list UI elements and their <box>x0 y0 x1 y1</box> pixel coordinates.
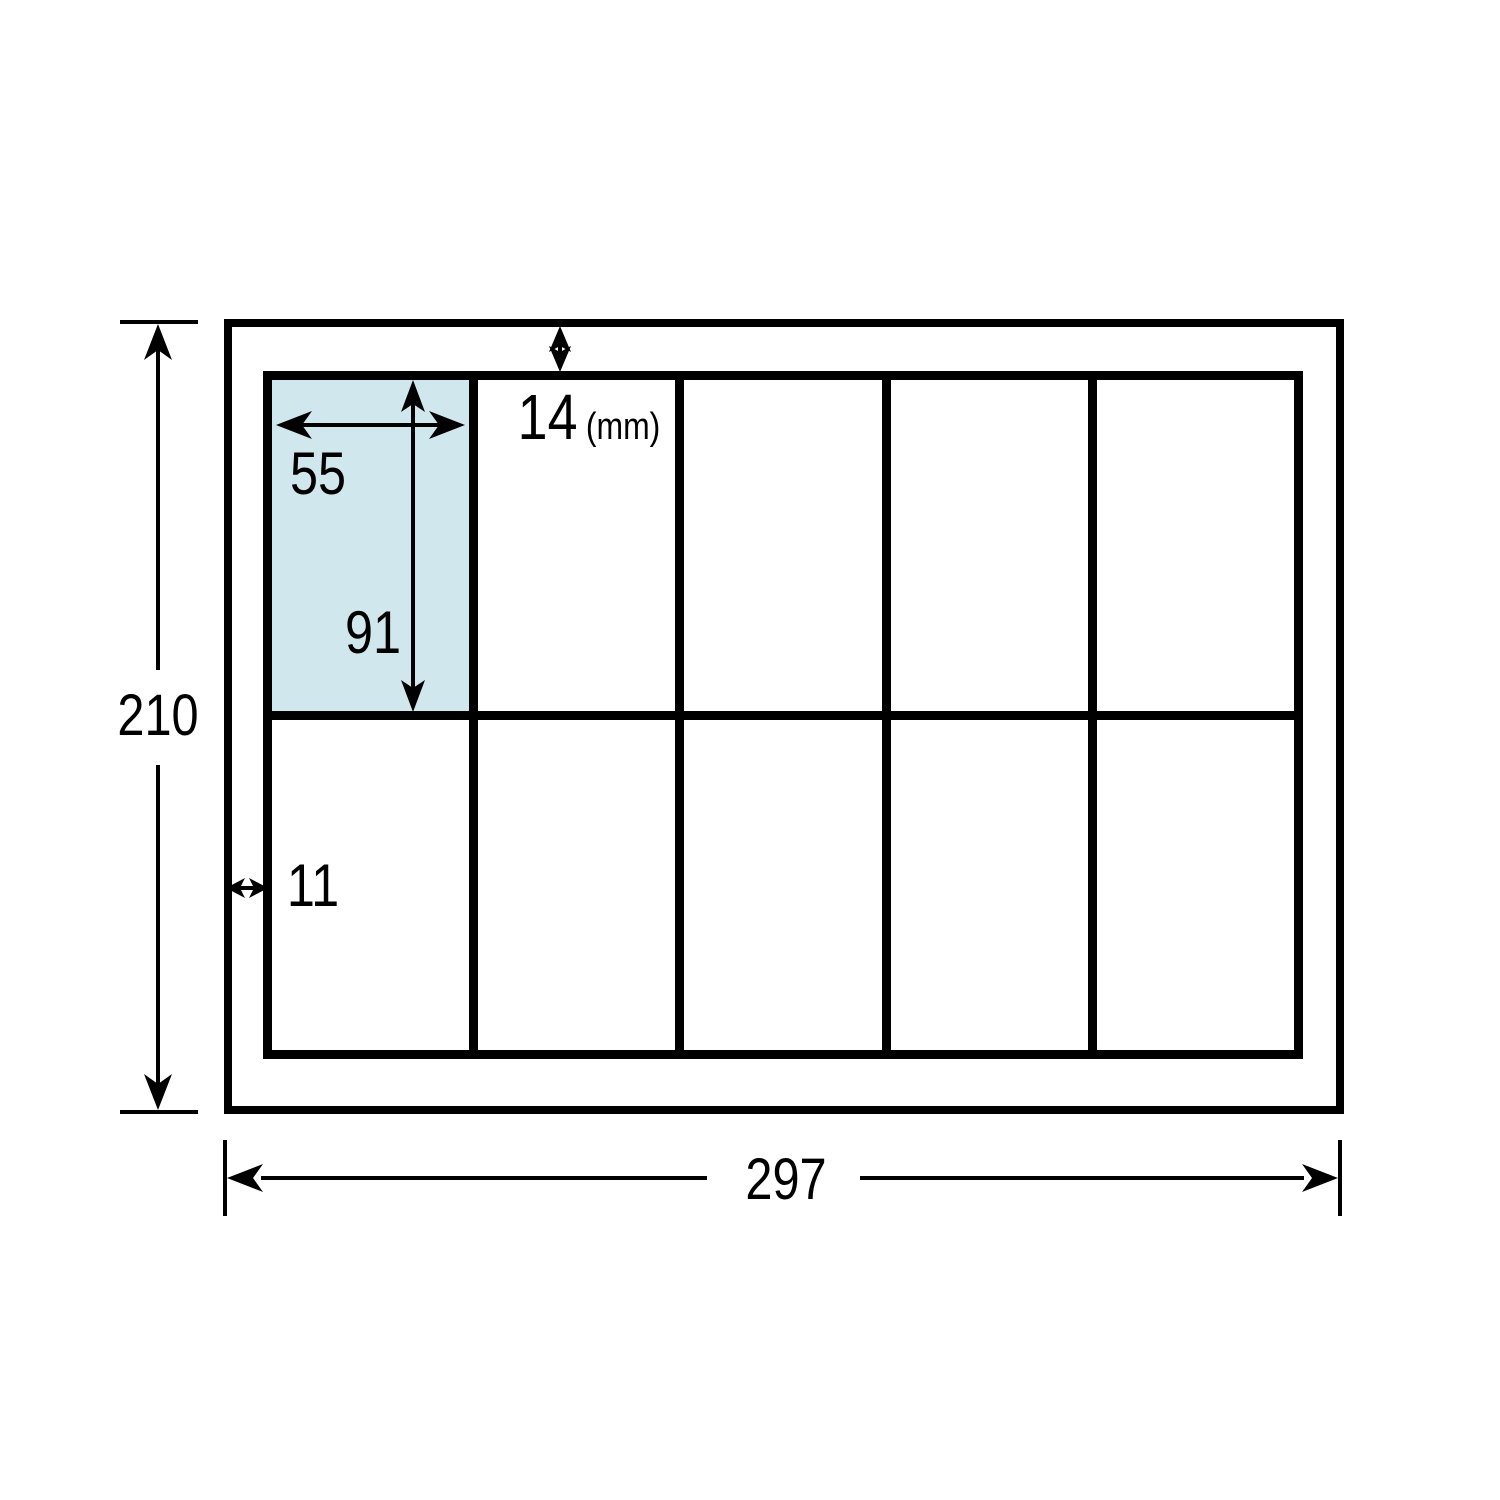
sheet-height-label: 210 <box>117 687 198 745</box>
label-width-label: 55 <box>290 444 346 504</box>
top-margin-label: 14 <box>518 385 578 449</box>
label-cell <box>1097 720 1294 1051</box>
left-margin-label: 11 <box>287 856 339 916</box>
sheet-width-label: 297 <box>745 1151 826 1209</box>
label-cell <box>891 380 1088 711</box>
arrowhead-left <box>227 1164 263 1192</box>
label-height-label: 91 <box>345 603 401 663</box>
top-margin-label-group: 14 (mm) <box>518 385 661 449</box>
label-grid <box>263 371 1303 1059</box>
arrowhead-right <box>1302 1164 1338 1192</box>
label-cell <box>891 720 1088 1051</box>
diagram-canvas: 210 297 14 (mm) 55 91 11 <box>0 0 1500 1500</box>
arrowhead-down <box>144 1074 172 1110</box>
label-cell <box>684 380 881 711</box>
label-cell <box>684 720 881 1051</box>
unit-label: (mm) <box>586 408 660 446</box>
label-cell <box>1097 380 1294 711</box>
label-cell <box>478 720 675 1051</box>
arrowhead-up <box>144 324 172 360</box>
